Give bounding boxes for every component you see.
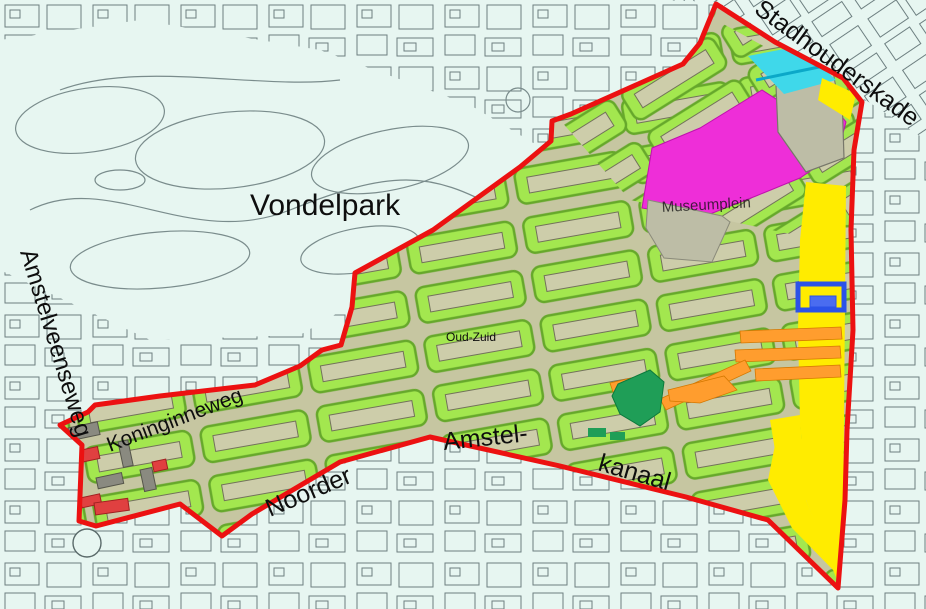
map-canvas: Vondelpark Amstelveenseweg Stadhouderska… (0, 0, 926, 609)
dark-green-block (588, 428, 606, 437)
zone-yellow-patch (770, 415, 802, 450)
roundabout (73, 529, 101, 557)
zone-blue-bar (810, 296, 836, 307)
label-vondelpark: Vondelpark (250, 189, 401, 222)
building-red (152, 459, 168, 472)
dark-green-block (610, 432, 625, 440)
map-viewport: Vondelpark Amstelveenseweg Stadhouderska… (0, 0, 926, 609)
label-oud-zuid: Oud-Zuid (446, 330, 496, 344)
